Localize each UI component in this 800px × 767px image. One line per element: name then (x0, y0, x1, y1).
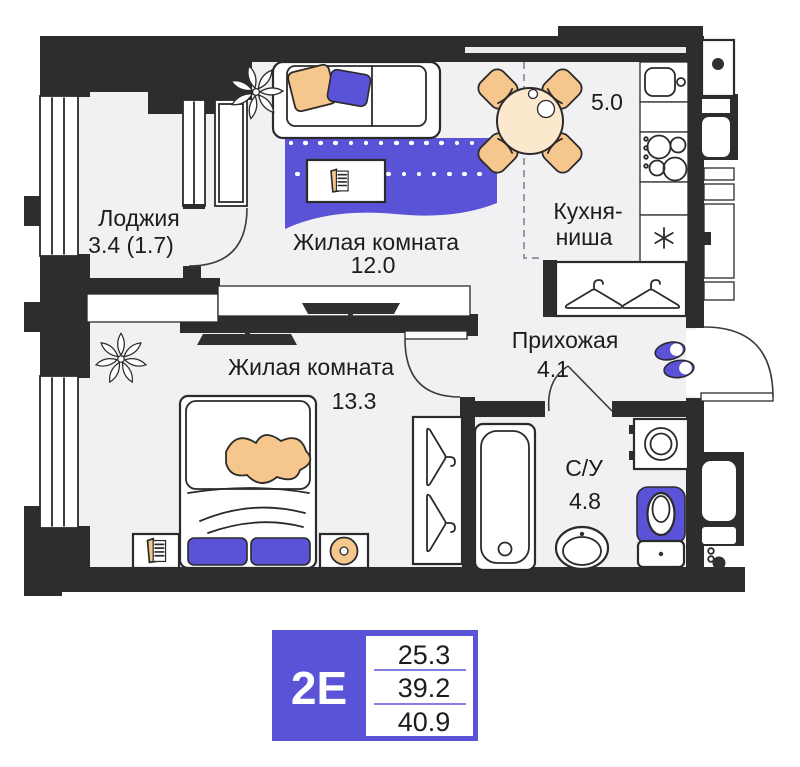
book-icon (331, 169, 348, 192)
kitchen-counter (640, 102, 688, 132)
bathroom-sink (556, 527, 608, 569)
living-room-area: 12.0 (351, 252, 396, 278)
bedroom-label: Жилая комната (228, 354, 394, 380)
bedroom-console (87, 294, 218, 322)
legend: 2Е 25.3 39.2 40.9 (272, 630, 478, 741)
legend-total-area: 40.9 (398, 707, 451, 737)
shaft-dot-marker (712, 58, 724, 70)
hallway-wardrobe (556, 262, 686, 316)
bedroom-area: 13.3 (332, 388, 377, 414)
kitchen-counter (640, 182, 688, 215)
bed (180, 396, 316, 568)
loggia-area: 3.4 (1.7) (88, 232, 174, 258)
legend-plan-type: 2Е (291, 662, 347, 714)
riser-dot-marker (713, 557, 726, 570)
toilet (637, 487, 685, 567)
bathtub (475, 424, 535, 570)
floor-plan-svg: Лоджия 3.4 (1.7) Жилая комната 12.0 5.0 … (0, 0, 800, 767)
cup-icon (529, 90, 538, 99)
bed-pillow (251, 538, 310, 565)
entrance-door (686, 327, 773, 401)
bedroom-window (40, 376, 78, 528)
kitchen-niche-appliances (640, 62, 688, 262)
loggia-window (40, 96, 78, 256)
kitchen-label-1: Кухня- (553, 198, 622, 224)
kitchen-label-2: ниша (556, 224, 613, 250)
nightstand-right (320, 534, 368, 568)
nightstand-left (133, 534, 179, 568)
bathroom-area: 4.8 (569, 488, 601, 514)
bedroom-door-leaf (405, 331, 467, 339)
bedroom-closet (413, 417, 462, 564)
plate-icon (538, 101, 555, 118)
hallway-label: Прихожая (512, 327, 619, 353)
fridge (640, 215, 688, 262)
stove-icon (640, 132, 688, 182)
floor-plan-page: Лоджия 3.4 (1.7) Жилая комната 12.0 5.0 … (0, 0, 800, 767)
hallway-area: 4.1 (537, 356, 569, 382)
washing-machine (629, 419, 688, 469)
coffee-table (307, 160, 385, 202)
entrance-door-leaf (701, 393, 773, 401)
legend-room-area: 25.3 (398, 640, 451, 670)
sofa-pillow-blue (327, 69, 372, 107)
sofa (273, 62, 440, 138)
legend-living-area: 39.2 (398, 673, 451, 703)
kitchen-area: 5.0 (591, 89, 623, 115)
bed-pillow (188, 538, 247, 565)
bathroom-label: С/У (565, 455, 603, 481)
blanket (226, 435, 310, 483)
kitchen-sink (640, 62, 688, 102)
entrance-door-arc (704, 327, 773, 397)
loggia-label: Лоджия (98, 205, 180, 231)
book-icon (148, 539, 166, 563)
